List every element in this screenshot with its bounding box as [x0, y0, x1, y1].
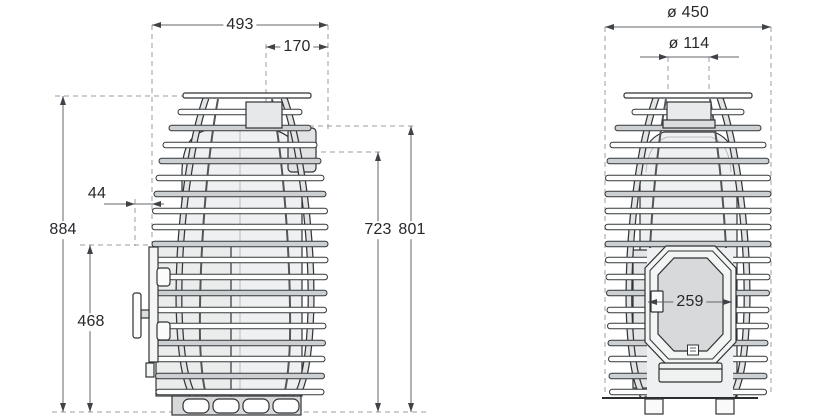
door-hinge-bottom — [157, 322, 170, 340]
dimension-drawing: 493 170 44 884 468 723 801 ø 450 ø 114 2… — [0, 0, 832, 417]
chimney-collar-front — [667, 102, 711, 121]
dim-label-door-width: 259 — [673, 293, 706, 311]
dim-label-overall-height: 884 — [46, 221, 79, 239]
front-view-stove — [602, 93, 771, 414]
dim-label-flue-offset: 170 — [280, 38, 313, 56]
door-hinge-top — [157, 268, 170, 286]
ash-drawer — [659, 363, 722, 382]
door-bracket — [146, 363, 154, 377]
chimney-collar-side — [246, 102, 282, 128]
side-view-stove — [133, 93, 328, 415]
base-pedestal — [172, 396, 301, 415]
brand-logo — [688, 345, 699, 355]
side-view — [52, 22, 428, 415]
front-view — [602, 24, 771, 414]
door-handle-connector — [141, 310, 149, 318]
dim-label-outer-diameter: ø 450 — [664, 4, 712, 22]
dim-label-flue-diameter: ø 114 — [666, 35, 713, 53]
top-plate-side — [183, 93, 311, 98]
foot-right — [716, 399, 734, 414]
foot-left — [645, 399, 663, 414]
dim-label-door-protrusion: 44 — [85, 185, 109, 203]
dim-label-firebox-top-height: 468 — [74, 313, 107, 331]
dim-label-overall-width: 493 — [223, 16, 256, 34]
door-handle — [133, 293, 141, 338]
top-plate-front — [624, 93, 752, 98]
dim-label-rear-outlet-inner: 723 — [361, 221, 394, 239]
dim-label-rear-outlet-outer: 801 — [395, 221, 428, 239]
chimney-flange-front — [663, 120, 715, 128]
firebox-door-plate — [149, 247, 158, 362]
drawing-canvas — [0, 0, 832, 417]
